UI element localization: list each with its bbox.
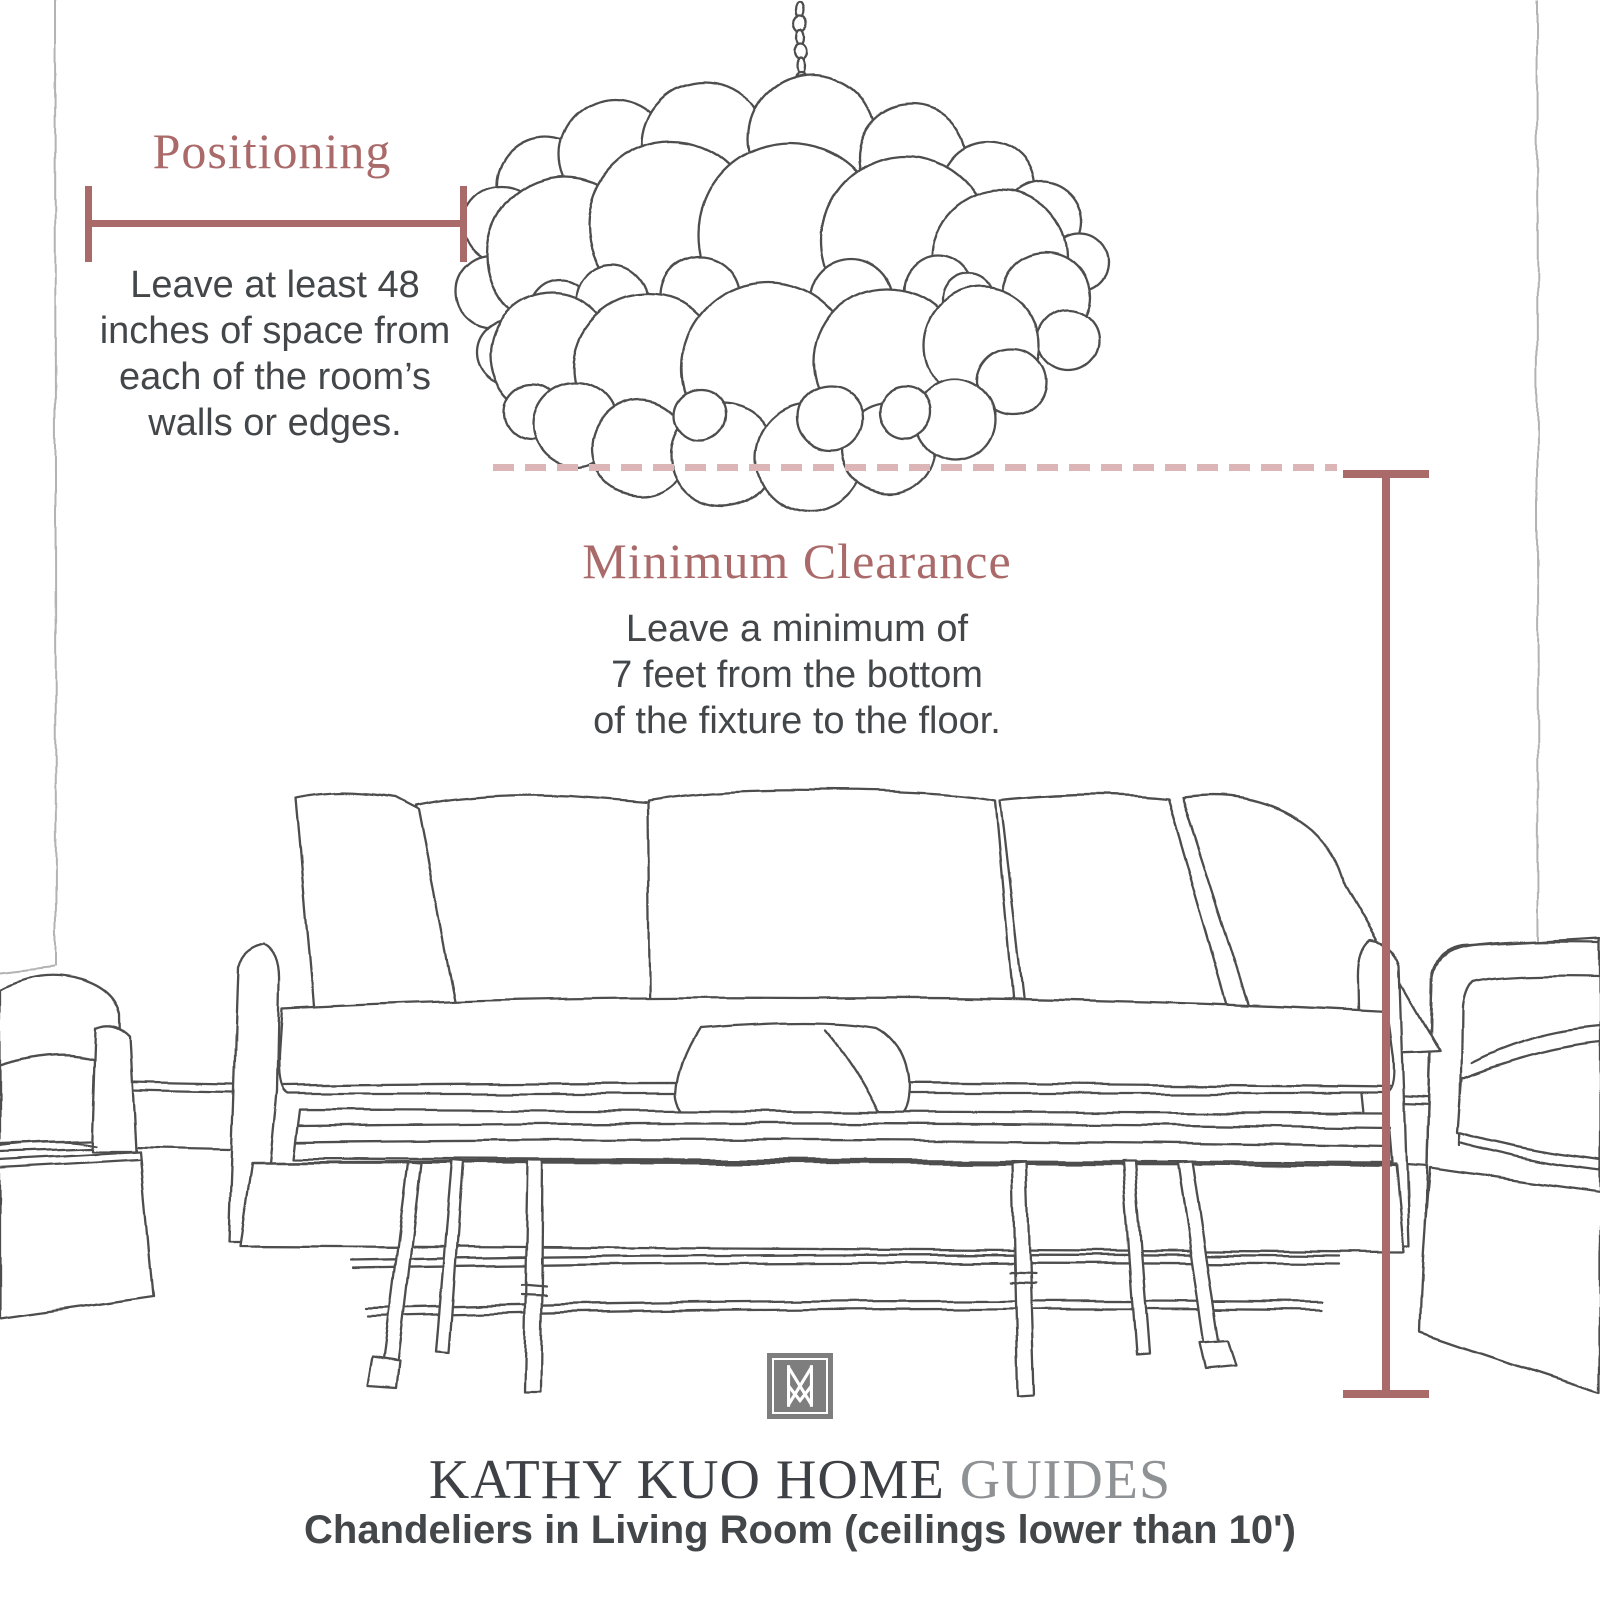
brand-suffix: GUIDES [945,1449,1171,1511]
clearance-body-line: 7 feet from the bottom [497,652,1097,698]
brand-title: KATHY KUO HOME GUIDES [300,1448,1300,1512]
chandelier-illustration [456,2,1108,512]
bracket-bar [85,220,467,227]
clearance-dashed-line [493,464,1337,471]
clearance-title: Minimum Clearance [497,532,1097,590]
armchair-left-illustration [0,976,153,1318]
positioning-body-line: Leave at least 48 [72,262,478,308]
positioning-title: Positioning [82,122,462,180]
armchair-right-illustration [1420,938,1600,1392]
bench-top [294,1110,1392,1162]
clearance-body: Leave a minimum of 7 feet from the botto… [497,606,1097,744]
clearance-body-line: Leave a minimum of [497,606,1097,652]
bench-leg [524,1160,543,1392]
logo-monogram [772,1358,828,1414]
bench-illustration [294,1110,1392,1396]
brand-main: KATHY KUO HOME [429,1449,945,1511]
vline-bar [1382,470,1390,1398]
guide-subtitle: Chandeliers in Living Room (ceilings low… [150,1508,1450,1553]
positioning-body: Leave at least 48 inches of space from e… [72,262,478,446]
bracket-right-cap [460,186,467,262]
positioning-body-line: inches of space from [72,308,478,354]
vline-bottom-cap [1343,1390,1429,1398]
positioning-body-line: walls or edges. [72,400,478,446]
positioning-body-line: each of the room’s [72,354,478,400]
infographic-canvas: Positioning Leave at least 48 inches of … [0,0,1600,1600]
chandelier-bubbles [456,74,1108,512]
clearance-body-line: of the fixture to the floor. [497,698,1097,744]
kathy-kuo-home-logo-icon [767,1353,833,1419]
